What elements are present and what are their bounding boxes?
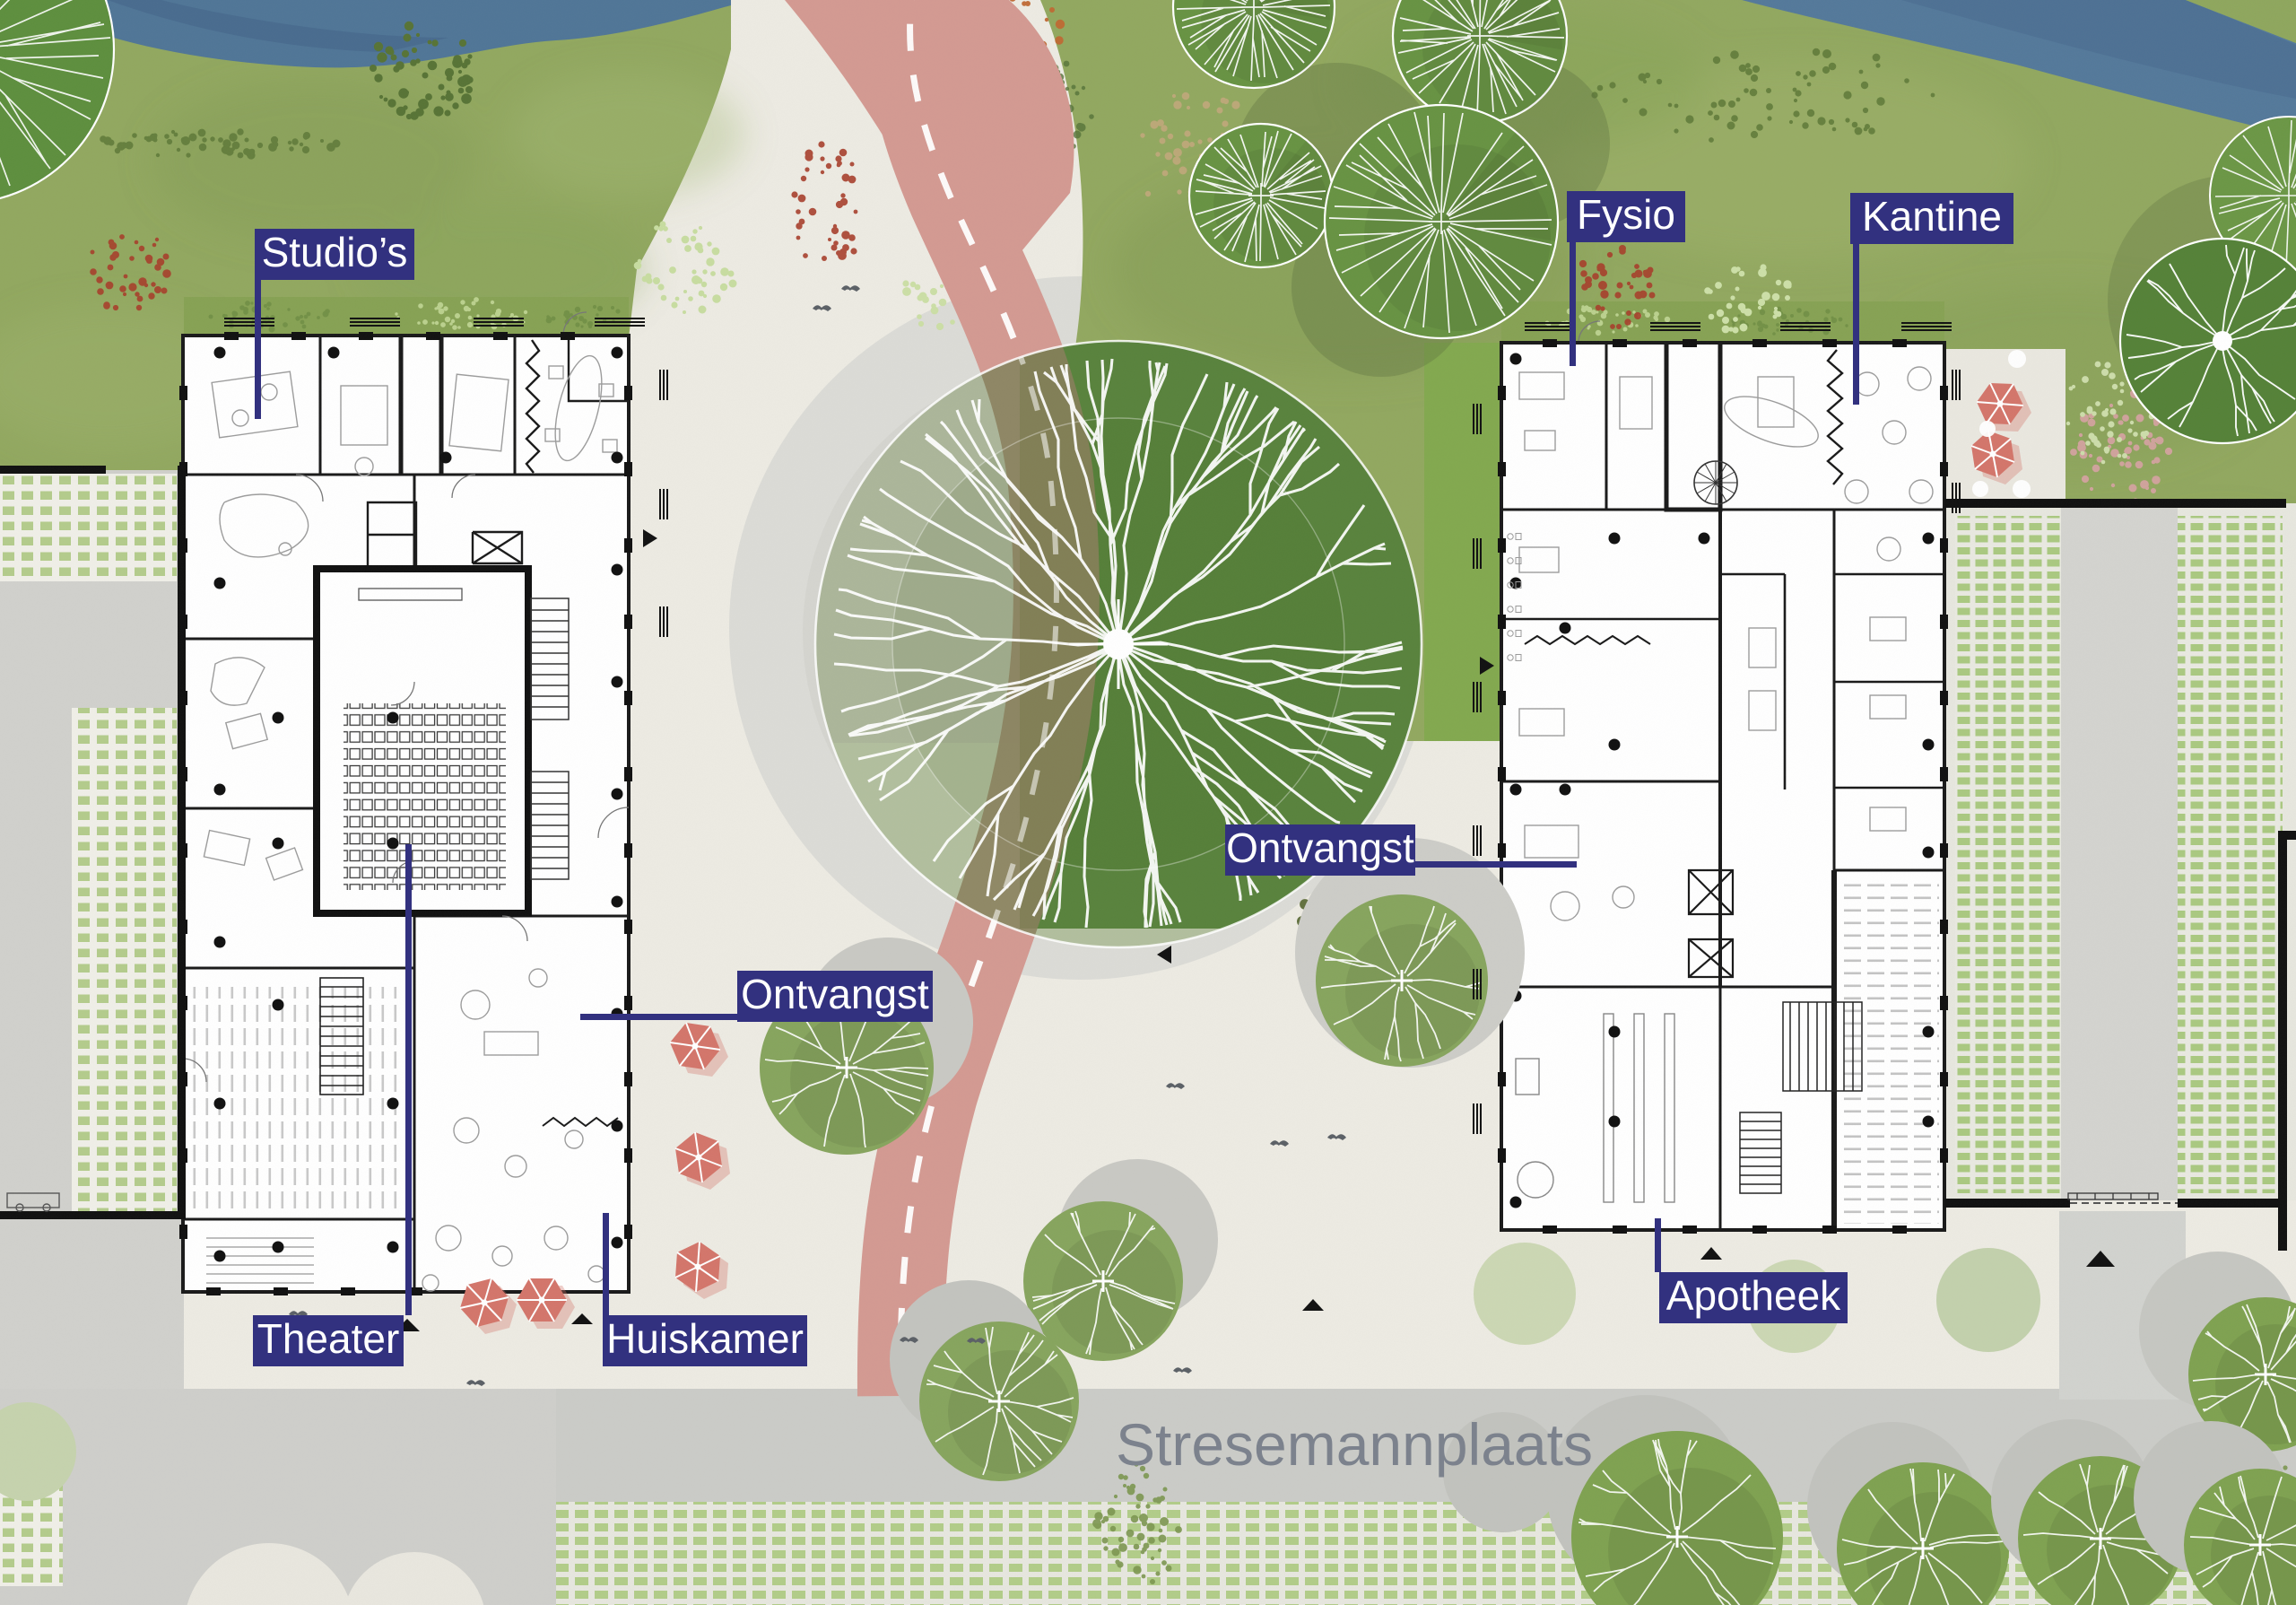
svg-text:Apotheek: Apotheek — [1666, 1272, 1841, 1319]
svg-text:Stresemannplaats: Stresemannplaats — [1116, 1411, 1593, 1478]
svg-text:Studio’s: Studio’s — [262, 229, 408, 275]
svg-text:Fysio: Fysio — [1577, 191, 1675, 238]
svg-text:Ontvangst: Ontvangst — [741, 971, 929, 1017]
svg-text:Theater: Theater — [257, 1315, 400, 1362]
svg-text:Kantine: Kantine — [1862, 193, 2002, 240]
svg-text:Ontvangst: Ontvangst — [1226, 824, 1414, 871]
svg-text:Huiskamer: Huiskamer — [606, 1315, 804, 1362]
